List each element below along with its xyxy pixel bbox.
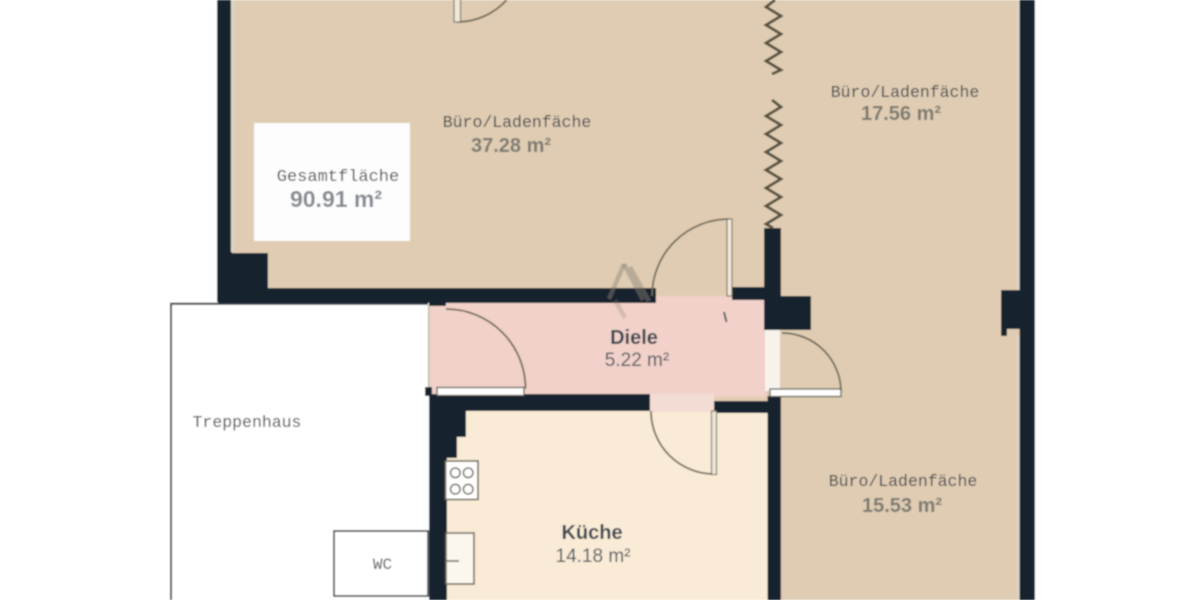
svg-text:37.28 m²: 37.28 m² <box>471 135 551 157</box>
svg-text:14.18 m²: 14.18 m² <box>556 546 631 567</box>
svg-text:5.22 m²: 5.22 m² <box>605 350 669 371</box>
svg-text:Küche: Küche <box>561 522 622 544</box>
svg-text:Diele: Diele <box>610 327 658 349</box>
svg-text:Büro/Ladenfäche: Büro/Ladenfäche <box>443 113 592 132</box>
svg-text:Büro/Ladenfäche: Büro/Ladenfäche <box>829 472 978 491</box>
svg-text:15.53 m²: 15.53 m² <box>862 495 942 517</box>
svg-text:90.91 m²: 90.91 m² <box>290 186 382 212</box>
svg-text:Büro/Ladenfäche: Büro/Ladenfäche <box>831 83 980 102</box>
svg-text:Gesamtfläche: Gesamtfläche <box>277 168 399 187</box>
svg-text:WC: WC <box>373 556 392 574</box>
svg-text:Treppenhaus: Treppenhaus <box>193 413 302 432</box>
svg-text:17.56 m²: 17.56 m² <box>861 103 941 125</box>
